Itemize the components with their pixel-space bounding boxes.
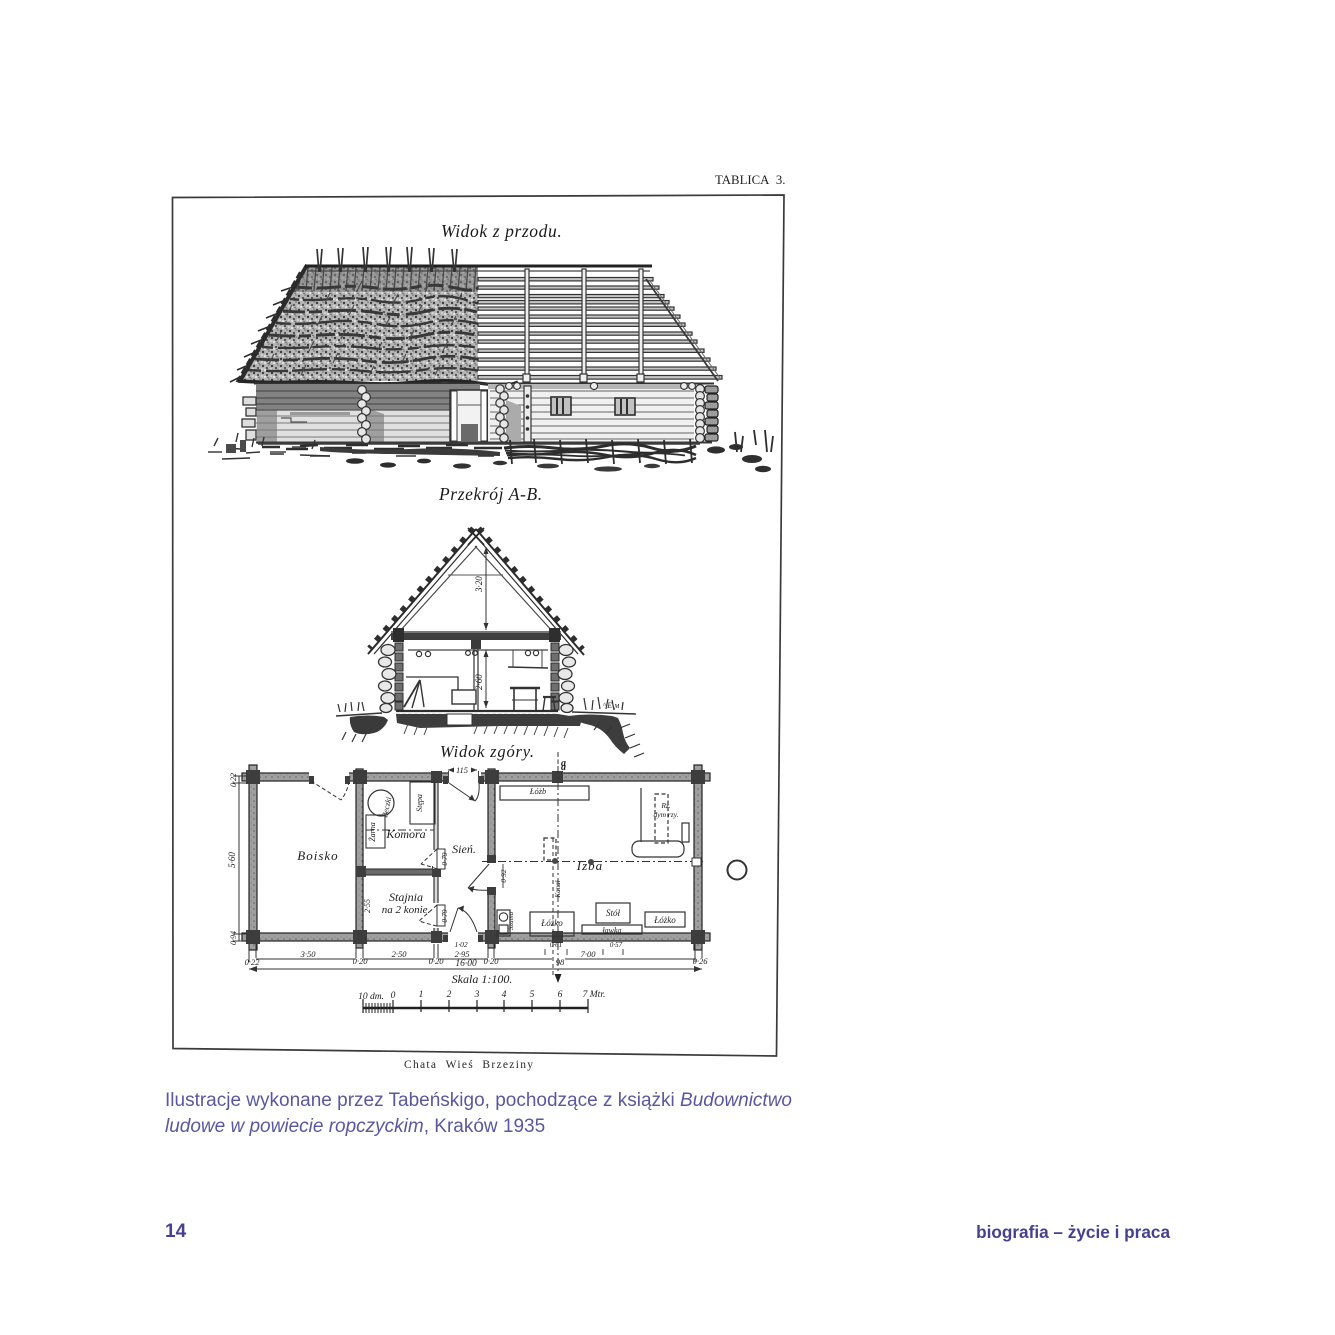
svg-text:Szama: Szama: [507, 911, 515, 930]
svg-text:0·20: 0·20: [353, 956, 369, 966]
svg-text:1·02: 1·02: [454, 940, 467, 949]
svg-text:0·22: 0·22: [229, 773, 238, 787]
svg-text:7 Mtr.: 7 Mtr.: [583, 990, 606, 1000]
svg-text:Widok z przodu.: Widok z przodu.: [441, 221, 562, 241]
svg-text:0·79: 0·79: [440, 852, 449, 865]
svg-text:Sień.: Sień.: [452, 842, 476, 856]
svg-text:5·60: 5·60: [227, 852, 237, 868]
svg-text:7·00: 7·00: [581, 949, 597, 959]
svg-text:ʰ Ε ϻ: ʰ Ε ϻ: [603, 701, 619, 710]
svg-text:Rz.: Rz.: [660, 801, 671, 810]
svg-text:5: 5: [530, 990, 535, 1000]
svg-text:Chata Wieś Brzeziny: Chata Wieś Brzeziny: [404, 1059, 534, 1071]
svg-text:10 dm.: 10 dm.: [358, 992, 384, 1002]
svg-text:0·26: 0·26: [693, 956, 709, 966]
svg-text:Łóżb: Łóżb: [529, 786, 547, 796]
svg-text:na 2 konie.: na 2 konie.: [382, 904, 431, 916]
svg-text:0·57: 0·57: [610, 941, 623, 949]
svg-text:16·00: 16·00: [455, 959, 477, 969]
svg-text:0·22: 0·22: [245, 957, 261, 967]
svg-text:98: 98: [556, 957, 565, 967]
svg-text:2·50: 2·50: [392, 949, 408, 959]
svg-text:0·94: 0·94: [229, 931, 238, 945]
svg-text:6: 6: [558, 990, 563, 1000]
svg-text:Boisko: Boisko: [297, 848, 338, 863]
svg-text:115: 115: [456, 765, 468, 775]
svg-text:Łóżko: Łóżko: [653, 915, 676, 925]
svg-text:Widok zgóry.: Widok zgóry.: [440, 742, 535, 761]
svg-text:3·50: 3·50: [300, 949, 317, 959]
svg-text:0: 0: [391, 991, 396, 1001]
svg-text:TABLICA 3.: TABLICA 3.: [715, 173, 785, 187]
svg-text:2·95: 2·95: [455, 949, 470, 959]
svg-text:Stępa: Stępa: [415, 794, 424, 812]
svg-text:Stajnia: Stajnia: [389, 890, 423, 904]
svg-text:0·79: 0·79: [440, 909, 449, 922]
svg-text:0·61: 0·61: [550, 941, 562, 949]
svg-text:Stół: Stół: [606, 908, 621, 918]
svg-text:dym rzy.: dym rzy.: [654, 810, 679, 819]
svg-text:Przekrój A-B.: Przekrój A-B.: [438, 484, 543, 504]
svg-text:Żarna: Żarna: [368, 822, 377, 842]
svg-text:2·60: 2·60: [474, 674, 484, 690]
svg-text:ławka: ławka: [602, 926, 621, 935]
svg-text:Łóżko: Łóżko: [540, 918, 563, 928]
svg-text:1: 1: [419, 990, 424, 1000]
svg-text:3: 3: [474, 990, 480, 1000]
svg-text:Skala 1:100.: Skala 1:100.: [452, 972, 513, 986]
svg-text:2: 2: [447, 990, 452, 1000]
svg-text:a: a: [561, 762, 566, 773]
svg-text:4: 4: [502, 990, 507, 1000]
svg-text:3·20: 3·20: [474, 576, 484, 593]
svg-text:0·20: 0·20: [429, 956, 445, 966]
svg-text:Komora: Komora: [385, 827, 425, 841]
svg-text:2·55: 2·55: [363, 899, 372, 913]
svg-text:0·92: 0·92: [499, 869, 508, 882]
svg-text:0·20: 0·20: [484, 956, 500, 966]
